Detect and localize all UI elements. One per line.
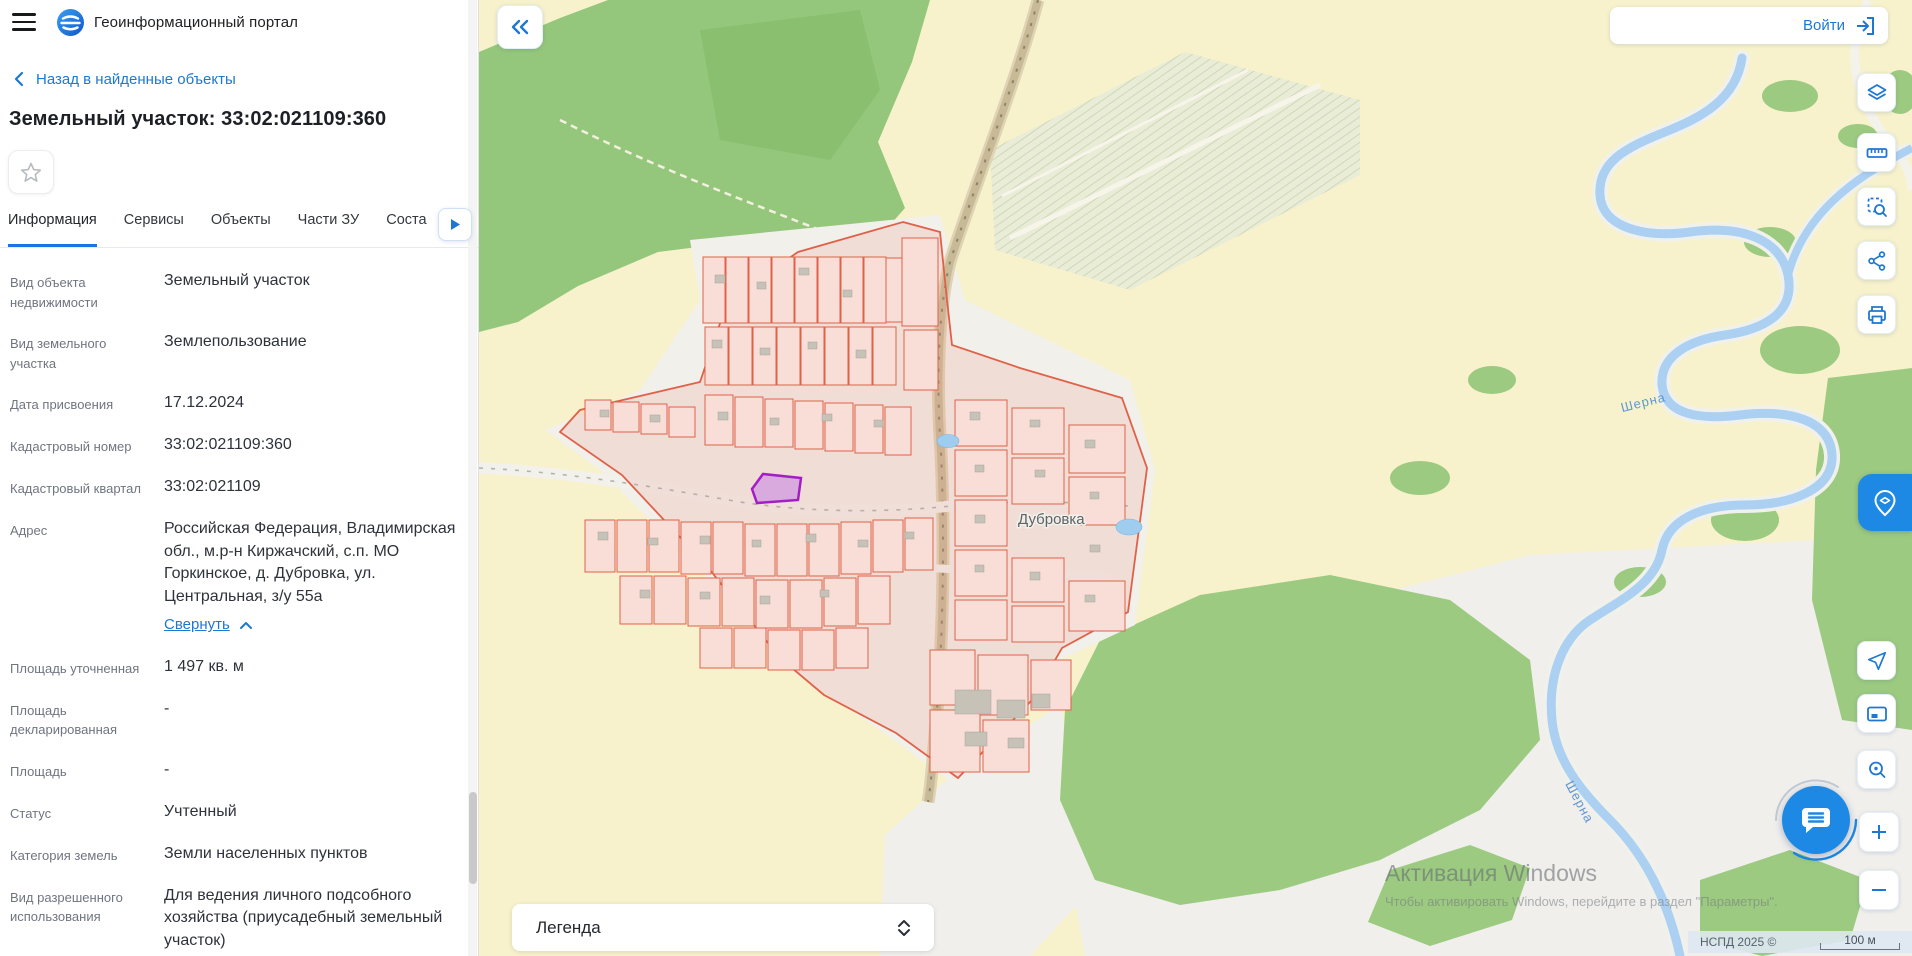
favorite-button[interactable]	[8, 150, 54, 194]
legend-title: Легенда	[536, 918, 601, 938]
field-row: Площадь декларированная-	[10, 698, 460, 740]
sort-arrows-icon	[896, 918, 912, 938]
windows-watermark-subtitle: Чтобы активировать Windows, перейдите в …	[1385, 894, 1778, 909]
settlement-label: Дубровка	[1018, 511, 1085, 528]
tab-objects[interactable]: Объекты	[211, 212, 271, 247]
object-info-panel: Геоинформационный портал Назад в найденн…	[0, 0, 479, 956]
scale-bar: 100 м	[1816, 932, 1904, 952]
minus-icon	[1868, 879, 1890, 901]
tab-composition[interactable]: Соста	[386, 212, 426, 247]
back-link-label: Назад в найденные объекты	[36, 71, 236, 88]
plus-icon	[1868, 821, 1890, 843]
location-arrow-icon	[1866, 650, 1888, 672]
layers-icon	[1865, 81, 1889, 105]
field-row: Вид разрешенного использованияДля ведени…	[10, 885, 460, 954]
tab-parcel-parts[interactable]: Части ЗУ	[298, 212, 360, 247]
windows-watermark-title: Активация Windows	[1385, 860, 1597, 887]
zoom-in-button[interactable]	[1859, 812, 1899, 852]
field-row-address: Адрес Российская Федерация, Владимирская…	[10, 518, 460, 637]
minimap-icon	[1865, 702, 1889, 726]
spatial-search-button[interactable]	[1857, 187, 1896, 226]
tabs-scroll-right-button[interactable]	[438, 208, 472, 241]
minimap-button[interactable]	[1857, 694, 1896, 733]
chat-button[interactable]	[1782, 786, 1850, 854]
field-row: Категория земельЗемли населенных пунктов	[10, 843, 460, 866]
field-row: СтатусУчтенный	[10, 801, 460, 824]
collapse-sidebar-button[interactable]	[497, 5, 543, 49]
ruler-icon	[1865, 141, 1889, 165]
tab-services[interactable]: Сервисы	[124, 212, 184, 247]
field-row: Дата присвоения17.12.2024	[10, 392, 460, 415]
print-button[interactable]	[1857, 295, 1896, 334]
sidebar-scrollbar-thumb[interactable]	[469, 792, 477, 884]
area-search-icon	[1865, 195, 1889, 219]
zoom-out-button[interactable]	[1859, 870, 1899, 910]
field-row: Кадастровый квартал33:02:021109	[10, 476, 460, 499]
chat-bubble-icon	[1799, 804, 1833, 836]
address-value: Российская Федерация, Владимирская обл.,…	[164, 520, 455, 606]
tab-information[interactable]: Информация	[8, 212, 97, 247]
login-button[interactable]: Войти	[1610, 7, 1888, 44]
field-row: Площадь уточненная1 497 кв. м	[10, 656, 460, 679]
attributes-list: Вид объекта недвижимостиЗемельный участо…	[10, 270, 460, 956]
star-icon	[19, 161, 43, 184]
map-pin-layers-icon	[1870, 488, 1900, 518]
share-button[interactable]	[1857, 241, 1896, 280]
app-title: Геоинформационный портал	[94, 14, 298, 31]
chat-widget	[1768, 772, 1864, 868]
map-attribution: НСПД 2025 © 100 м	[1688, 931, 1912, 953]
nspd-panel-tab[interactable]	[1858, 474, 1912, 531]
tab-bar: Информация Сервисы Объекты Части ЗУ Сост…	[0, 212, 478, 248]
chevron-up-icon	[239, 620, 253, 630]
login-label: Войти	[1803, 17, 1845, 34]
app-logo	[57, 9, 84, 36]
printer-icon	[1865, 303, 1889, 327]
measure-button[interactable]	[1857, 133, 1896, 172]
magnifier-icon	[1865, 758, 1889, 782]
back-link[interactable]: Назад в найденные объекты	[12, 70, 478, 88]
double-chevron-left-icon	[508, 17, 532, 37]
field-row: Кадастровый номер33:02:021109:360	[10, 434, 460, 457]
scale-bracket	[1820, 943, 1900, 950]
collapse-address-link[interactable]: Свернуть	[164, 614, 253, 635]
layers-button[interactable]	[1857, 73, 1896, 112]
field-row: Площадь-	[10, 759, 460, 782]
app-header: Геоинформационный портал	[0, 0, 478, 44]
share-icon	[1866, 250, 1888, 272]
login-icon	[1854, 15, 1876, 37]
field-row: Вид земельного участкаЗемлепользование	[10, 331, 460, 373]
selected-parcel[interactable]	[752, 474, 801, 503]
field-row: Вид объекта недвижимостиЗемельный участо…	[10, 270, 460, 312]
attribution-text: НСПД 2025 ©	[1688, 935, 1816, 949]
triangle-right-icon	[451, 219, 460, 230]
my-location-button[interactable]	[1857, 641, 1896, 680]
menu-button[interactable]	[12, 13, 36, 31]
page-title: Земельный участок: 33:02:021109:360	[9, 108, 478, 131]
legend-bar[interactable]: Легенда	[512, 904, 934, 951]
chevron-left-icon	[12, 70, 26, 88]
